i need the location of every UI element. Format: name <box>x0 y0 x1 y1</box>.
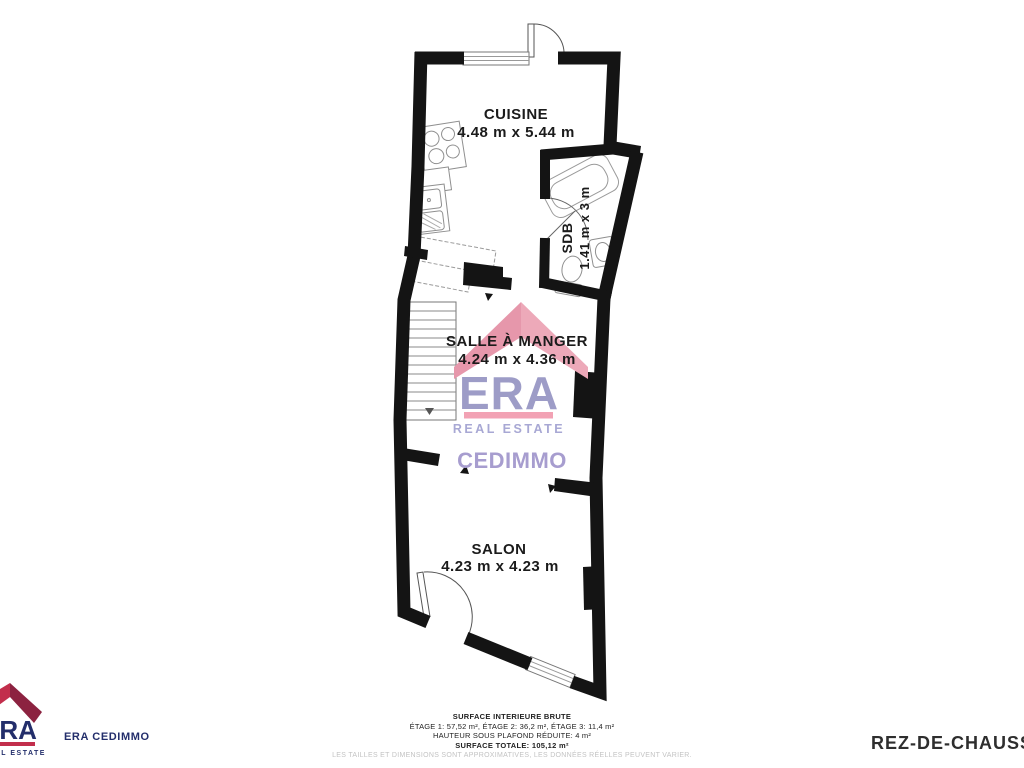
era-logo-icon: ERA REAL ESTATE <box>0 681 98 763</box>
logo-bar <box>0 742 35 746</box>
room-dims-cuisine: 4.48 m x 5.44 m <box>457 124 575 141</box>
watermark-tagline: REAL ESTATE <box>453 422 565 436</box>
room-dims-salon: 4.23 m x 4.23 m <box>441 558 559 575</box>
surface-title: SURFACE INTERIEURE BRUTE <box>312 712 712 722</box>
logo-brand: ERA <box>0 715 37 745</box>
watermark: ERA REAL ESTATE CEDIMMO <box>453 302 588 473</box>
floor-plan: ERA REAL ESTATE CEDIMMO CUISINE 4.48 m x… <box>0 0 1024 768</box>
room-label-salle-a-manger: SALLE À MANGER <box>446 333 588 350</box>
room-dims-sdb: 1.41 m x 3 m <box>577 186 592 269</box>
window-salon-icon <box>525 657 575 688</box>
room-dims-salle-a-manger: 4.24 m x 4.36 m <box>458 351 576 368</box>
surface-ceiling: HAUTEUR SOUS PLAFOND RÉDUITE: 4 m² <box>312 731 712 741</box>
room-label-salon: SALON <box>472 541 527 558</box>
agency-name: ERA CEDIMMO <box>64 731 150 743</box>
room-label-cuisine: CUISINE <box>484 106 548 123</box>
surface-floors: ÉTAGE 1: 57,52 m², ÉTAGE 2: 36,2 m², ÉTA… <box>312 722 712 732</box>
staircase <box>403 302 456 420</box>
surface-total: SURFACE TOTALE: 105,12 m² <box>312 741 712 751</box>
dimension-tick-icon <box>485 293 493 301</box>
watermark-bar <box>464 412 553 419</box>
room-label-sdb: SDB <box>559 222 575 253</box>
watermark-agency: CEDIMMO <box>457 448 567 473</box>
window-top-icon <box>463 52 529 65</box>
watermark-brand: ERA <box>459 367 559 419</box>
logo-tagline: REAL ESTATE <box>0 750 46 757</box>
surface-disclaimer: LES TAILLES ET DIMENSIONS SONT APPROXIMA… <box>312 750 712 761</box>
era-logo: ERA REAL ESTATE <box>0 681 98 763</box>
surface-summary: SURFACE INTERIEURE BRUTE ÉTAGE 1: 57,52 … <box>312 712 712 761</box>
floor-label: REZ-DE-CHAUSSÉE <box>871 733 1024 754</box>
